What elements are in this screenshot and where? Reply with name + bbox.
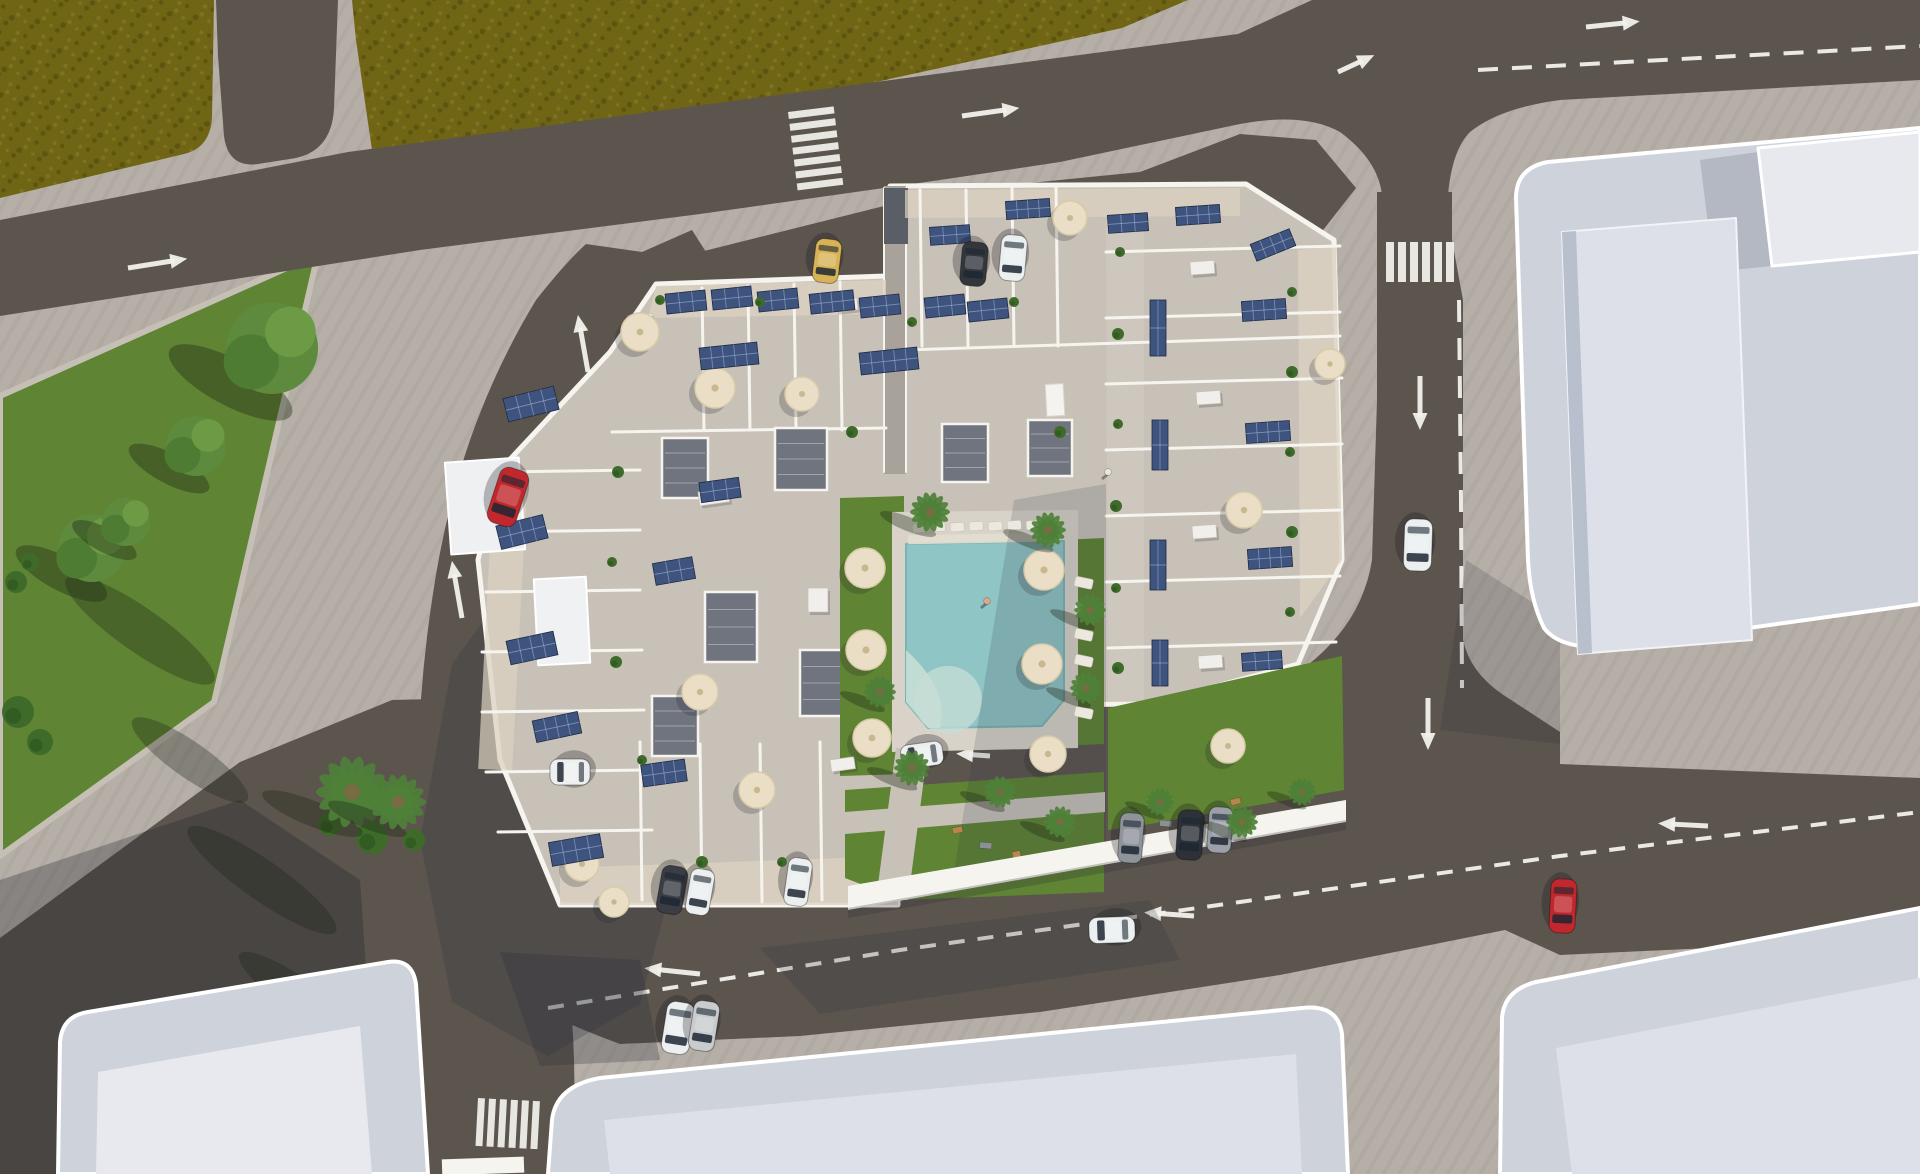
terrace-canopy-bed: [1045, 384, 1065, 417]
scene-layers: [0, 0, 1920, 1174]
complex-dark-shaft: [884, 188, 908, 244]
gravel-right-strip-west: [1106, 218, 1144, 702]
road-top-stub: [216, 0, 338, 164]
gravel-right-strip-east: [1298, 246, 1342, 618]
structure-bottom-mini: [442, 1157, 525, 1174]
building-topright-raised-corner: [1758, 132, 1920, 266]
building-topright-tall-slab: [1562, 218, 1752, 654]
scene-svg: [0, 0, 1920, 1174]
pool-shallow-lobe: [914, 666, 982, 734]
aerial-site-render: [0, 0, 1920, 1174]
